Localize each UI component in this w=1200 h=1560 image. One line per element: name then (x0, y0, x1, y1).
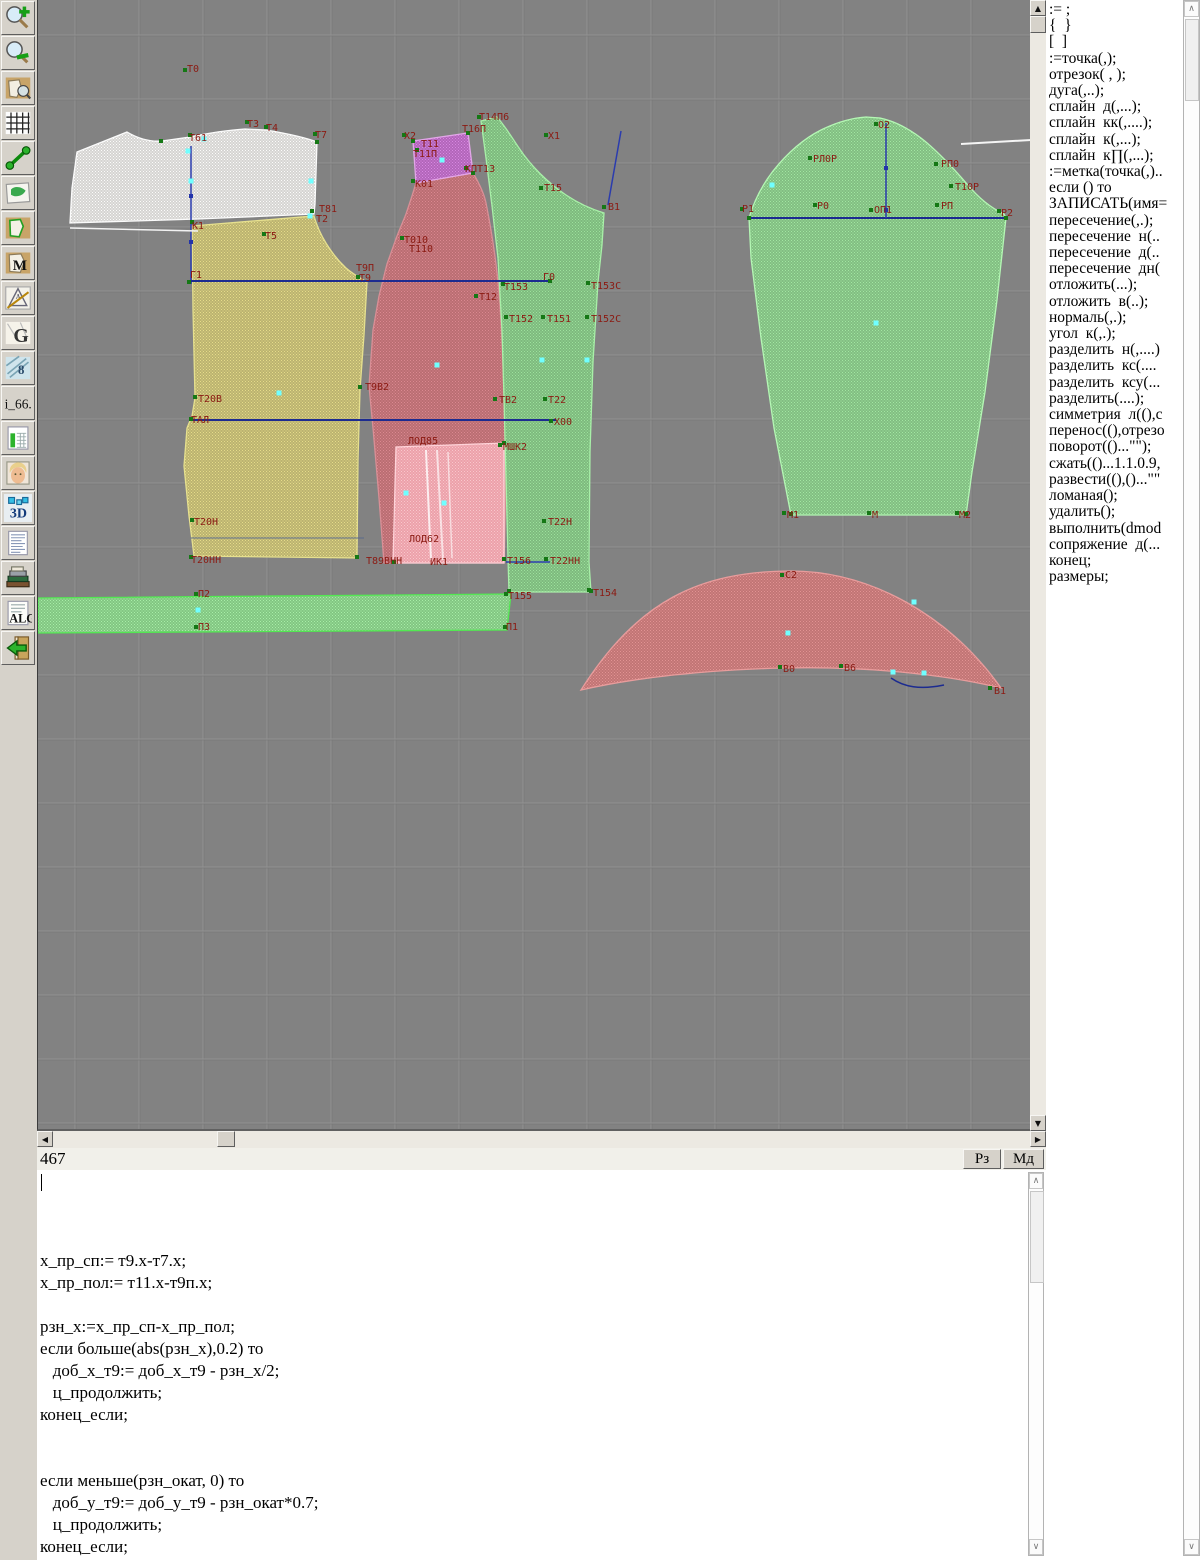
point-label: МШК2 (503, 442, 527, 453)
point-label: Т154 (593, 588, 617, 599)
point-label: Т152 (509, 314, 533, 325)
point-label: Т153 (504, 282, 528, 293)
point-label: Т89ВНН (366, 556, 402, 567)
command-item[interactable]: разделить кс(.... (1046, 358, 1183, 374)
text-caret (41, 1174, 42, 1191)
svg-text:ALG: ALG (9, 611, 32, 625)
command-item[interactable]: сплайн кк(,....); (1046, 115, 1183, 131)
point-label: Т61 (189, 133, 207, 144)
point-label: ЛОД85 (408, 436, 438, 447)
scroll-up-arrow[interactable]: ▲ (1030, 0, 1046, 16)
point-marker-green[interactable] (782, 511, 786, 515)
command-item[interactable]: удалить(); (1046, 504, 1183, 520)
toolbar-button-zoom-in[interactable] (1, 1, 35, 35)
point-marker-green[interactable] (542, 519, 546, 523)
toolbar-button-pattern-m[interactable]: M (1, 246, 35, 280)
point-label: Т4 (266, 123, 278, 134)
scroll-left-arrow[interactable]: ◀ (37, 1131, 53, 1147)
piece-waistband-strip[interactable] (38, 594, 511, 633)
point-label: ОП1 (874, 205, 892, 216)
point-label: Т22Н (548, 517, 572, 528)
point-marker-green[interactable] (586, 281, 590, 285)
point-marker-green[interactable] (474, 294, 478, 298)
vscroll-thumb[interactable] (1030, 16, 1046, 33)
point-marker-green[interactable] (988, 686, 992, 690)
point-label: РП (941, 201, 953, 212)
command-item[interactable]: :=метка(точка(,).. (1046, 164, 1183, 180)
point-label: ЛОД62 (409, 534, 439, 545)
command-item[interactable]: :=точка(,); (1046, 51, 1183, 67)
point-label: В1 (608, 202, 620, 213)
command-item[interactable]: ломаная(); (1046, 488, 1183, 504)
point-label: П2 (198, 589, 210, 600)
command-item[interactable]: перенос((),отрезо (1046, 423, 1183, 439)
command-item[interactable]: сплайн д(,...); (1046, 99, 1183, 115)
command-item[interactable]: ЗАПИСАТЬ(имя= (1046, 196, 1183, 212)
panel-vscrollbar[interactable]: ∧ ∨ (1183, 0, 1200, 1556)
point-label: Т11П (413, 149, 437, 160)
point-marker-cyan[interactable] (786, 631, 791, 636)
point-marker-green[interactable] (935, 203, 939, 207)
point-label: Т14П6 (479, 112, 509, 123)
map-icon (4, 179, 32, 207)
command-item[interactable]: пересечение д(.. (1046, 245, 1183, 261)
command-item[interactable]: сплайн к(,...); (1046, 132, 1183, 148)
toolbar-button-zoom-out[interactable] (1, 36, 35, 70)
point-marker-blue[interactable] (884, 166, 888, 170)
point-label: Т152С (591, 314, 621, 325)
point-marker-cyan[interactable] (277, 391, 282, 396)
point-label: Т110 (409, 244, 433, 255)
point-marker-green[interactable] (502, 557, 506, 561)
point-label: Т153С (591, 281, 621, 292)
grid-icon (4, 109, 32, 137)
toolbar-button-i66[interactable]: i_66. (1, 386, 35, 420)
pattern-g-icon: G (4, 319, 32, 347)
point-label: Т10Р (955, 182, 979, 193)
point-label: РП0 (941, 159, 959, 170)
point-marker-cyan[interactable] (309, 179, 314, 184)
command-item[interactable]: выполнить(dmod (1046, 521, 1183, 537)
toolbar-button-algorithms[interactable]: ALG (1, 596, 35, 630)
view-pattern-icon (4, 74, 32, 102)
toolbar-button-view-pattern[interactable] (1, 71, 35, 105)
point-marker-green[interactable] (839, 664, 843, 668)
toolbar-button-blueprint[interactable]: 8 (1, 351, 35, 385)
point-marker-cyan[interactable] (308, 214, 313, 219)
command-item[interactable]: отрезок( , ); (1046, 67, 1183, 83)
point-marker-green[interactable] (159, 139, 163, 143)
zoom-in-icon (4, 4, 32, 32)
app-window: MAG8i_66.3DALG Т0Т61Т3Т4Т7Т81Т2К1Т5Г1Т9П… (0, 0, 1200, 1560)
point-label: М2 (959, 510, 971, 521)
md-button[interactable]: Мд (1003, 1149, 1044, 1169)
command-item[interactable]: сплайн к∏(,...); (1046, 148, 1183, 164)
point-label: КПТ13 (465, 164, 495, 175)
point-marker-cyan[interactable] (585, 358, 590, 363)
command-item[interactable]: если () то (1046, 180, 1183, 196)
editor-scroll-thumb[interactable] (1030, 1191, 1044, 1283)
command-item[interactable]: нормаль(,.); (1046, 310, 1183, 326)
point-marker-green[interactable] (355, 555, 359, 559)
command-panel: := ;{ }[ ]:=точка(,);отрезок( , );дуга(,… (1046, 0, 1183, 1560)
toolbar-button-map[interactable] (1, 176, 35, 210)
point-marker-green[interactable] (869, 208, 873, 212)
point-marker-cyan[interactable] (912, 600, 917, 605)
point-label: Т7 (315, 130, 327, 141)
point-marker-green[interactable] (310, 209, 314, 213)
point-label: Р1 (742, 204, 754, 215)
hscroll-thumb[interactable] (217, 1131, 235, 1147)
point-marker-green[interactable] (549, 419, 553, 423)
toolbar-button-document-text[interactable] (1, 526, 35, 560)
point-marker-blue[interactable] (189, 194, 193, 198)
code-editor[interactable]: x_пр_сп:= т9.x-т7.x; x_пр_пол:= т11.x-т9… (37, 1170, 1028, 1560)
point-marker-cyan[interactable] (770, 183, 775, 188)
svg-text:3D: 3D (10, 506, 27, 521)
point-marker-blue[interactable] (189, 240, 193, 244)
point-marker-cyan[interactable] (189, 179, 194, 184)
piece-back-bottom[interactable] (184, 216, 367, 558)
algorithms-icon: ALG (4, 599, 32, 627)
point-marker-cyan[interactable] (440, 158, 445, 163)
pattern-outline-icon (4, 214, 32, 242)
point-label: Т2 (316, 214, 328, 225)
point-marker-cyan[interactable] (404, 491, 409, 496)
point-marker-green[interactable] (358, 385, 362, 389)
canvas-hscrollbar[interactable]: ◀ ▶ (37, 1131, 1046, 1148)
svg-text:i_66.: i_66. (5, 396, 32, 411)
point-label: Т5 (265, 231, 277, 242)
toolbar-button-grid[interactable] (1, 106, 35, 140)
i66-icon: i_66. (4, 389, 32, 417)
point-label: В6 (844, 663, 856, 674)
point-marker-green[interactable] (778, 665, 782, 669)
point-label: Т3 (247, 119, 259, 130)
point-label: ТВ2 (499, 395, 517, 406)
point-marker-cyan[interactable] (186, 149, 191, 154)
toolbar-button-drafting[interactable]: A (1, 281, 35, 315)
point-marker-green[interactable] (780, 573, 784, 577)
point-marker-green[interactable] (498, 443, 502, 447)
point-marker-cyan[interactable] (891, 670, 896, 675)
svg-text:8: 8 (18, 363, 24, 377)
status-row: 467 Рз Мд (37, 1148, 1046, 1170)
point-label: П1 (506, 622, 518, 633)
point-label: М (872, 510, 878, 521)
canvas-vscrollbar[interactable]: ▲ ▼ (1030, 0, 1046, 1131)
point-marker-green[interactable] (544, 557, 548, 561)
point-label: Т0 (187, 64, 199, 75)
editor-scroll-up-arrow[interactable]: ∧ (1029, 1173, 1043, 1189)
point-label: Т155 (508, 591, 532, 602)
panel-scroll-thumb[interactable] (1185, 19, 1199, 101)
point-marker-cyan[interactable] (196, 608, 201, 613)
books-icon (4, 564, 32, 592)
scroll-down-arrow[interactable]: ▼ (1030, 1115, 1046, 1131)
point-label: П3 (198, 622, 210, 633)
point-label: Т12 (479, 292, 497, 303)
blueprint-icon: 8 (4, 354, 32, 382)
command-item[interactable]: развести((),()..."" (1046, 472, 1183, 488)
command-item[interactable]: угол к(,.); (1046, 326, 1183, 342)
command-item[interactable]: отложить в(..); (1046, 294, 1183, 310)
point-label: Г0 (543, 272, 555, 283)
point-marker-green[interactable] (493, 397, 497, 401)
point-label: Т20В (198, 394, 222, 405)
point-marker-green[interactable] (949, 184, 953, 188)
point-label: Х1 (548, 131, 560, 142)
point-label: Т156 (507, 556, 531, 567)
size-chart-icon (4, 424, 32, 452)
point-label: В1 (994, 686, 1006, 697)
editor-vscrollbar[interactable]: ∧ ∨ (1028, 1172, 1044, 1556)
command-item[interactable]: разделить(....); (1046, 391, 1183, 407)
toolbar-button-size-chart[interactable] (1, 421, 35, 455)
editor-scroll-down-arrow[interactable]: ∨ (1029, 1539, 1043, 1555)
toolbar-button-model-photo[interactable] (1, 456, 35, 490)
point-label: Х2 (404, 131, 416, 142)
drawing-canvas[interactable]: Т0Т61Т3Т4Т7Т81Т2К1Т5Г1Т9ПТ9Т20ВТАЛТ9В2Т2… (37, 0, 1031, 1131)
point-marker-green[interactable] (543, 397, 547, 401)
toolbar-button-pattern-g[interactable]: G (1, 316, 35, 350)
toolbar-button-segment[interactable] (1, 141, 35, 175)
view-3d-icon: 3D (4, 494, 32, 522)
document-text-icon (4, 529, 32, 557)
command-item[interactable]: симметрия л((),с (1046, 407, 1183, 423)
pattern-m-icon: M (4, 249, 32, 277)
model-photo-icon (4, 459, 32, 487)
command-item[interactable]: сжать(()...1.1.0.9, (1046, 456, 1183, 472)
point-label: Т22 (548, 395, 566, 406)
point-label: К01 (415, 179, 433, 190)
point-label: Р2 (1001, 208, 1013, 219)
svg-text:M: M (13, 257, 27, 274)
drafting-icon: A (4, 284, 32, 312)
command-item[interactable]: { } (1046, 18, 1183, 34)
point-label: ТАЛ (191, 415, 209, 426)
point-marker-cyan[interactable] (435, 363, 440, 368)
point-marker-cyan[interactable] (874, 321, 879, 326)
panel-scroll-up-arrow[interactable]: ∧ (1184, 1, 1199, 17)
command-item[interactable]: разделить ксу(... (1046, 375, 1183, 391)
command-item[interactable]: сопряжение д(... (1046, 537, 1183, 553)
point-marker-cyan[interactable] (540, 358, 545, 363)
toolbar-button-books[interactable] (1, 561, 35, 595)
segment-icon (4, 144, 32, 172)
rz-button[interactable]: Рз (963, 1149, 1001, 1169)
point-label: Т20НН (191, 555, 221, 566)
point-label: Т9В2 (365, 382, 389, 393)
point-label: Т151 (547, 314, 571, 325)
command-item[interactable]: [ ] (1046, 34, 1183, 50)
point-marker-green[interactable] (867, 511, 871, 515)
toolbar-button-view-3d[interactable]: 3D (1, 491, 35, 525)
point-label: Р0 (817, 201, 829, 212)
panel-scroll-down-arrow[interactable]: ∨ (1184, 1539, 1199, 1555)
point-marker-green[interactable] (504, 315, 508, 319)
command-item[interactable]: размеры; (1046, 569, 1183, 585)
point-label: С2 (785, 570, 797, 581)
exit-icon (4, 634, 32, 662)
scroll-right-arrow[interactable]: ▶ (1030, 1131, 1046, 1147)
point-marker-green[interactable] (585, 315, 589, 319)
toolbar-button-pattern-outline[interactable] (1, 211, 35, 245)
row-number: 467 (40, 1149, 66, 1169)
toolbar-button-exit[interactable] (1, 631, 35, 665)
command-item[interactable]: пересечение дн( (1046, 261, 1183, 277)
point-marker-green[interactable] (193, 395, 197, 399)
toolbar: MAG8i_66.3DALG (0, 0, 37, 1560)
command-item[interactable]: пересечение н(.. (1046, 229, 1183, 245)
point-label: Г1 (190, 270, 202, 281)
command-item[interactable]: разделить н(,....) (1046, 342, 1183, 358)
point-marker-green[interactable] (539, 186, 543, 190)
command-item[interactable]: := ; (1046, 2, 1183, 18)
point-label: В0 (783, 664, 795, 675)
code-text: x_пр_сп:= т9.x-т7.x; x_пр_пол:= т11.x-т9… (40, 1250, 318, 1558)
point-label: Т22НН (550, 556, 580, 567)
point-label: ИК1 (430, 557, 448, 568)
point-label: М1 (787, 510, 799, 521)
point-label: К1 (192, 221, 204, 232)
point-marker-green[interactable] (541, 315, 545, 319)
svg-text:G: G (13, 325, 28, 347)
command-item[interactable]: поворот(()...""); (1046, 439, 1183, 455)
point-label: О2 (878, 120, 890, 131)
zoom-out-icon (4, 39, 32, 67)
point-label: Т16П (462, 124, 486, 135)
point-marker-green[interactable] (934, 162, 938, 166)
point-label: Т20Н (194, 517, 218, 528)
point-marker-green[interactable] (808, 156, 812, 160)
point-marker-cyan[interactable] (442, 501, 447, 506)
point-label: Х00 (554, 417, 572, 428)
point-label: РЛ0Р (813, 154, 837, 165)
command-item[interactable]: отложить(...); (1046, 277, 1183, 293)
command-item[interactable]: пересечение(,.); (1046, 213, 1183, 229)
point-label: Т15 (544, 183, 562, 194)
point-marker-green[interactable] (747, 216, 751, 220)
point-marker-green[interactable] (602, 205, 606, 209)
point-label: Т9 (359, 273, 371, 284)
command-item[interactable]: конец; (1046, 553, 1183, 569)
command-item[interactable]: дуга(,..); (1046, 83, 1183, 99)
point-marker-cyan[interactable] (922, 671, 927, 676)
